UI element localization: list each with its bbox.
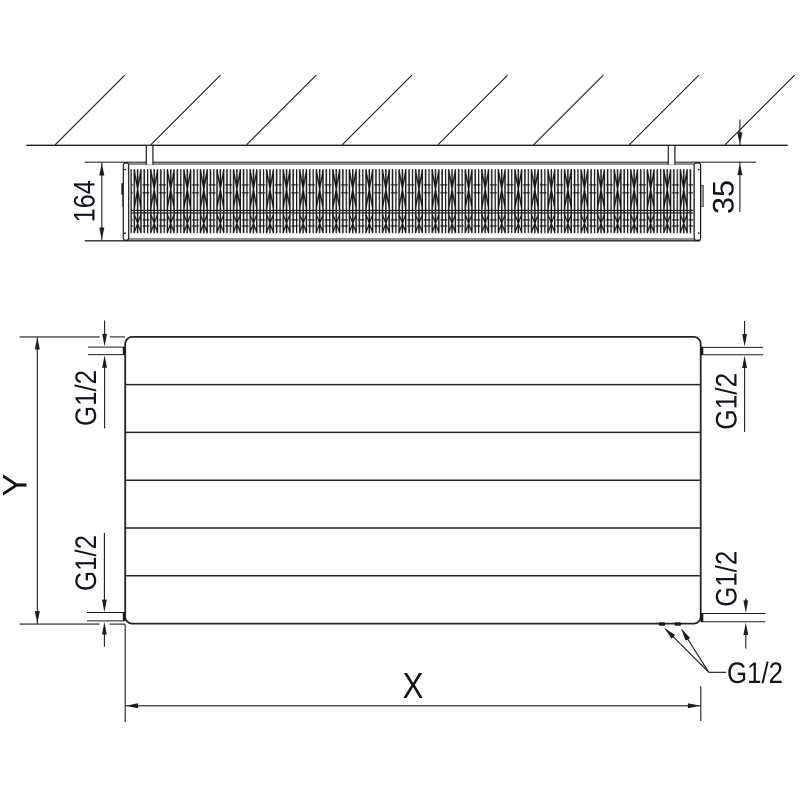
svg-text:X: X — [403, 665, 424, 706]
svg-text:35: 35 — [707, 180, 740, 214]
svg-text:G1/2: G1/2 — [70, 370, 103, 426]
svg-text:G1/2: G1/2 — [711, 373, 744, 430]
svg-text:G1/2: G1/2 — [727, 657, 783, 690]
svg-text:G1/2: G1/2 — [711, 551, 744, 607]
svg-text:164: 164 — [69, 180, 102, 222]
svg-text:Y: Y — [0, 474, 35, 497]
svg-text:G1/2: G1/2 — [70, 535, 103, 591]
